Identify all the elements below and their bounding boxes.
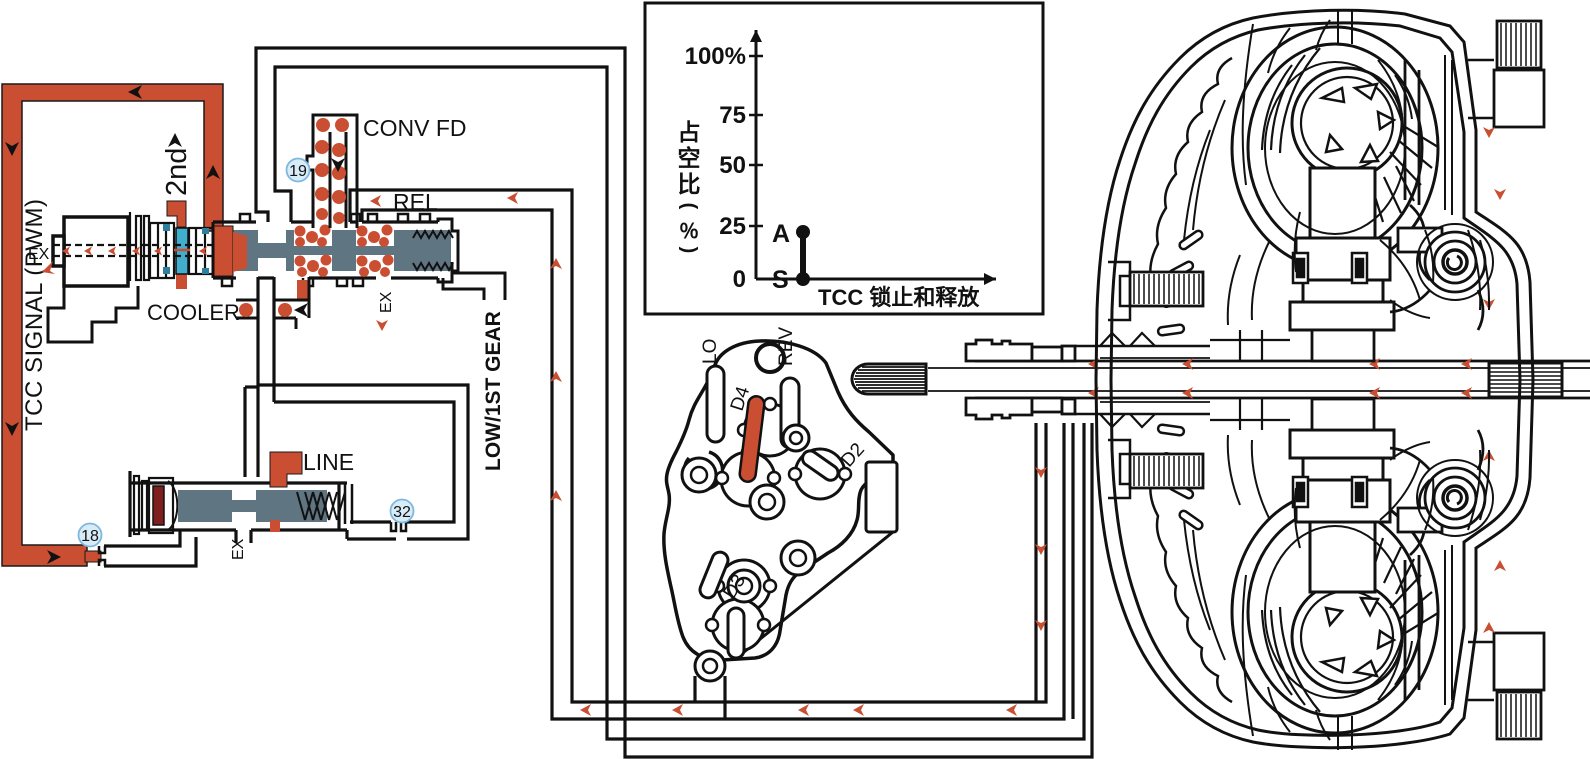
- svg-text:％: ％: [679, 221, 699, 243]
- svg-text:18: 18: [81, 528, 99, 545]
- svg-text:A: A: [772, 220, 790, 248]
- svg-text:50: 50: [719, 152, 746, 179]
- svg-text:0: 0: [733, 266, 746, 293]
- svg-text:(: (: [678, 203, 700, 210]
- svg-text:占: 占: [678, 119, 701, 145]
- svg-text:EX: EX: [230, 538, 247, 560]
- svg-text:TCC SIGNAL (PWM): TCC SIGNAL (PWM): [21, 199, 48, 431]
- svg-text:REL: REL: [393, 189, 438, 215]
- svg-text:): ): [678, 247, 700, 254]
- svg-text:32: 32: [393, 504, 411, 521]
- svg-text:100%: 100%: [685, 43, 746, 70]
- svg-text:CONV FD: CONV FD: [363, 115, 467, 141]
- svg-text:空: 空: [678, 145, 701, 171]
- svg-text:TCC 锁止和释放: TCC 锁止和释放: [818, 285, 980, 310]
- svg-text:75: 75: [719, 102, 746, 129]
- svg-text:S: S: [772, 266, 789, 294]
- svg-text:REV: REV: [776, 327, 797, 366]
- svg-text:19: 19: [289, 163, 307, 180]
- svg-text:比: 比: [678, 171, 701, 197]
- svg-text:25: 25: [719, 213, 746, 240]
- svg-text:EX: EX: [28, 246, 50, 263]
- svg-text:LINE: LINE: [303, 449, 354, 475]
- svg-text:EX: EX: [378, 291, 395, 313]
- svg-text:LOW/1ST GEAR: LOW/1ST GEAR: [482, 311, 505, 471]
- svg-text:LO: LO: [700, 339, 721, 364]
- svg-text:COOLER: COOLER: [147, 300, 240, 325]
- svg-text:2nd: 2nd: [161, 148, 193, 196]
